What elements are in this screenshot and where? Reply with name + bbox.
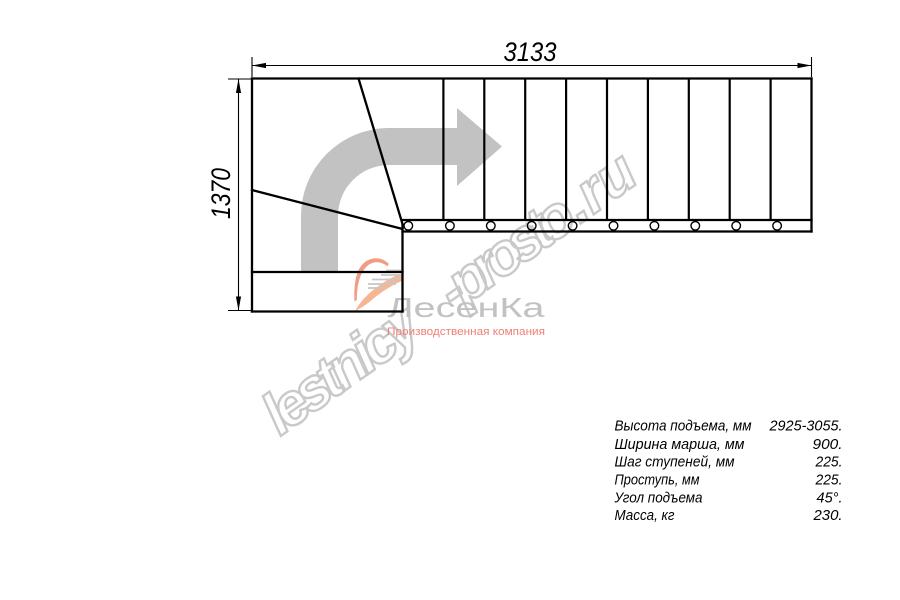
svg-text:Шаг ступеней, мм: Шаг ступеней, мм: [615, 454, 735, 471]
svg-text:225.: 225.: [815, 454, 843, 471]
svg-text:Производственная компания: Производственная компания: [387, 326, 545, 338]
svg-text:Проступь, мм: Проступь, мм: [615, 472, 700, 489]
svg-text:230.: 230.: [813, 507, 843, 524]
svg-text:ЛесенКа: ЛесенКа: [388, 292, 546, 323]
svg-text:Масса, кг: Масса, кг: [615, 507, 676, 524]
svg-text:225.: 225.: [815, 472, 843, 489]
svg-text:900.: 900.: [813, 436, 843, 453]
svg-text:2925-3055.: 2925-3055.: [769, 418, 843, 435]
svg-text:Ширина марша, мм: Ширина марша, мм: [615, 436, 745, 453]
svg-text:Угол подъема: Угол подъема: [614, 489, 703, 506]
svg-text:1370: 1370: [206, 168, 236, 219]
svg-text:Высота подъема, мм: Высота подъема, мм: [615, 418, 752, 435]
svg-text:45°.: 45°.: [817, 489, 843, 506]
svg-text:3133: 3133: [504, 37, 557, 67]
